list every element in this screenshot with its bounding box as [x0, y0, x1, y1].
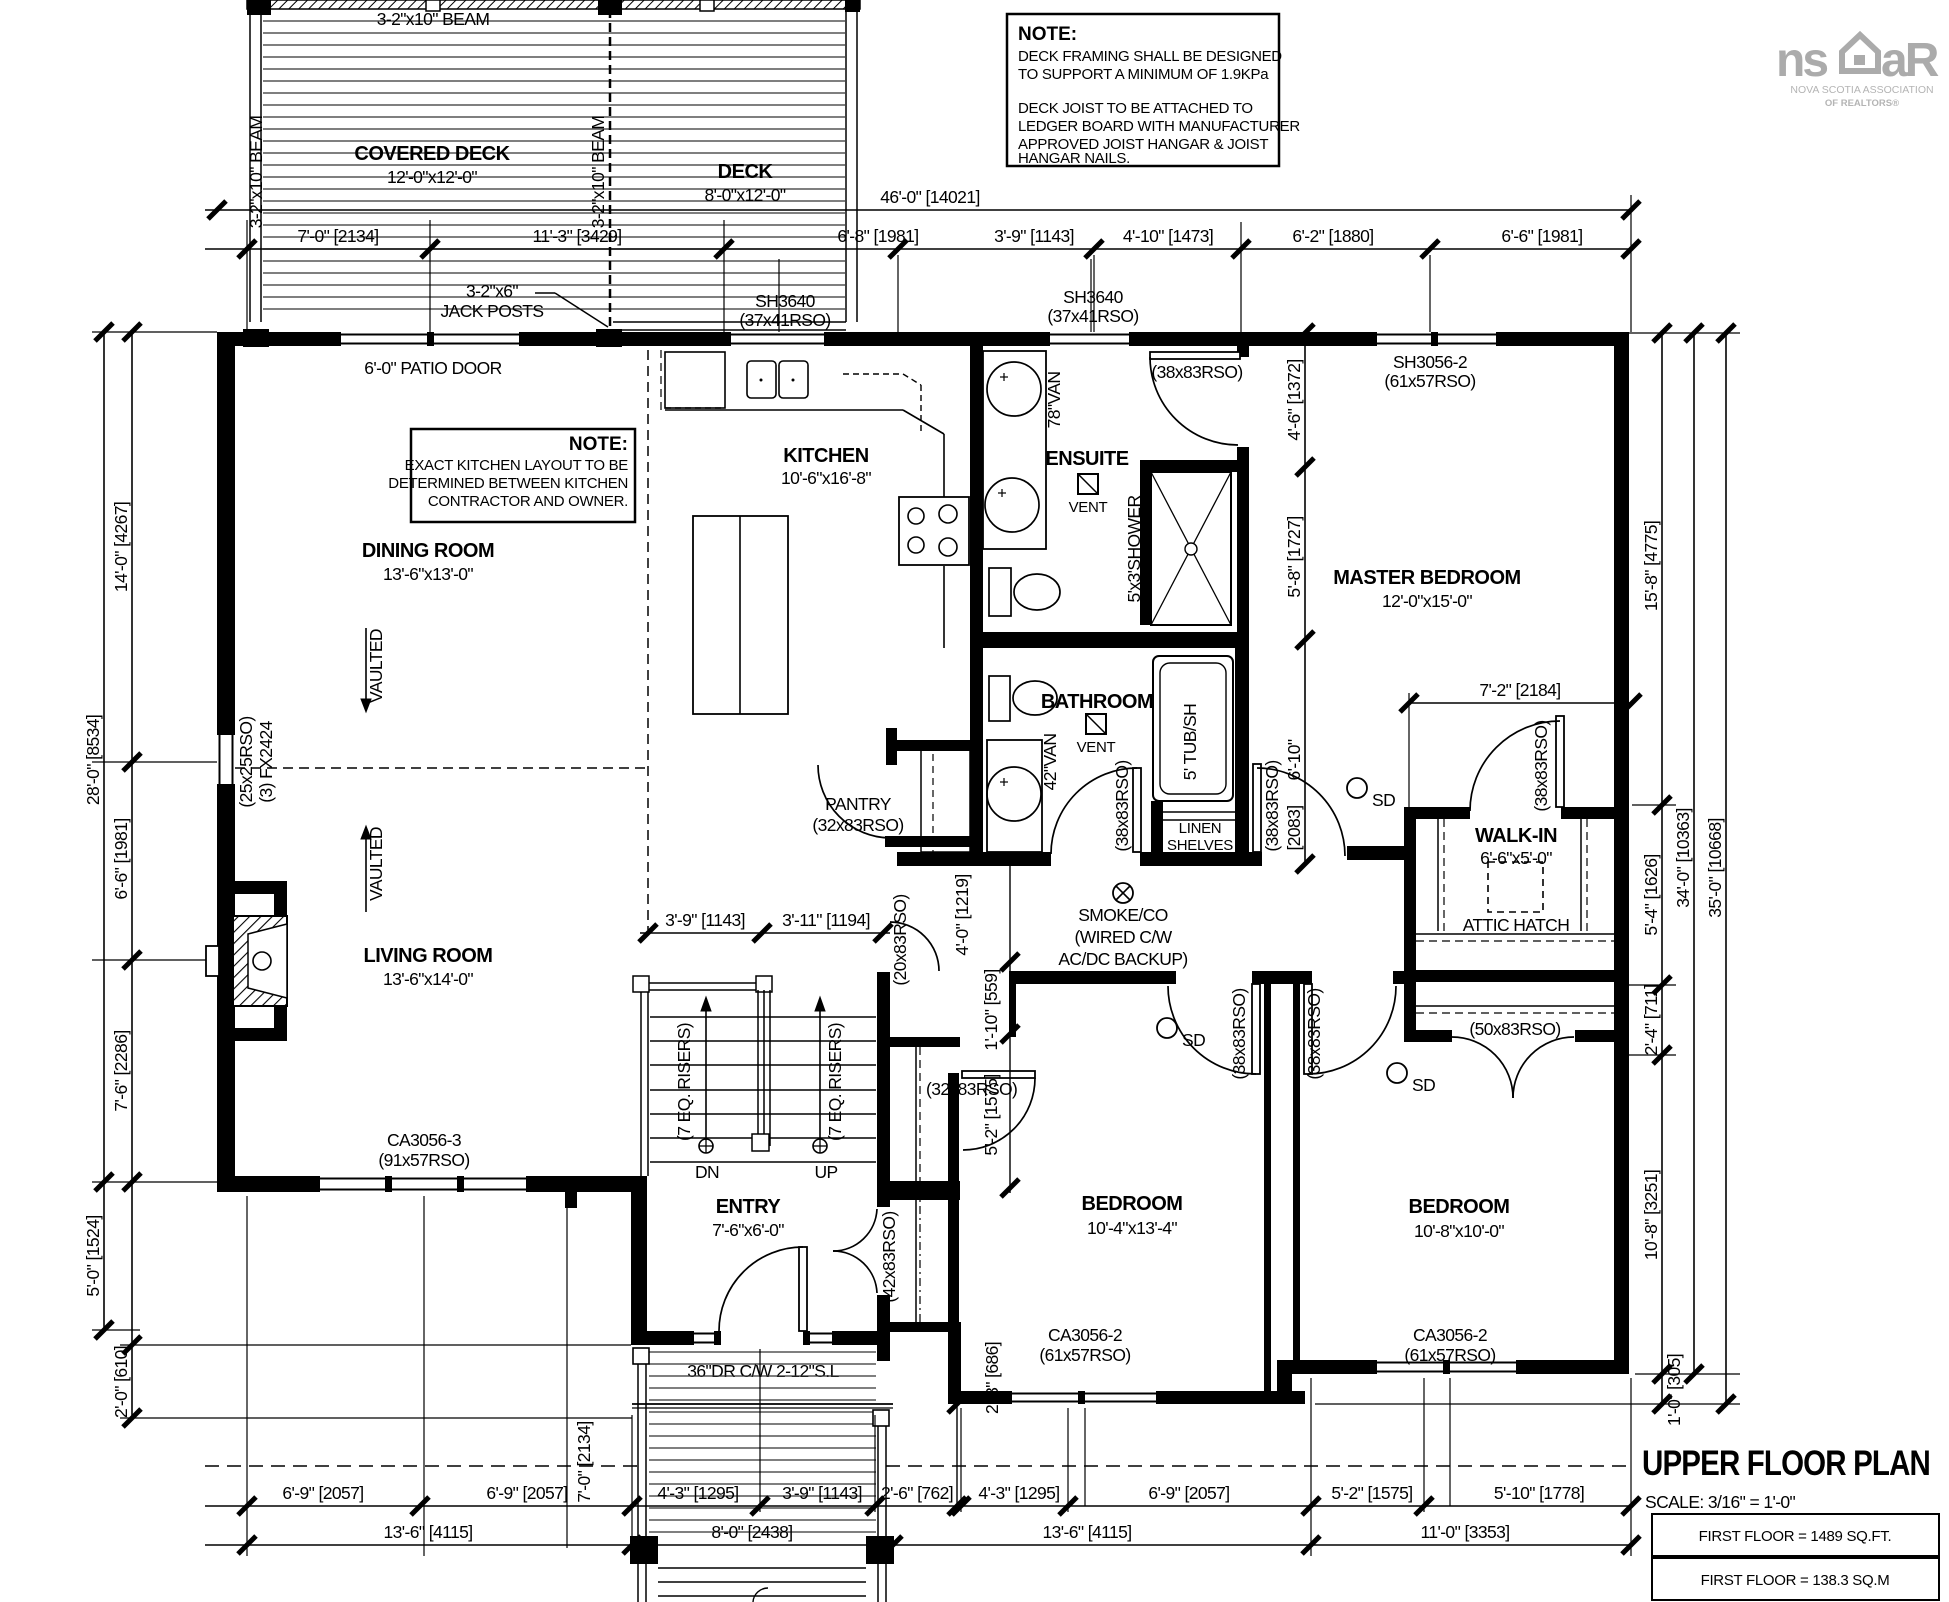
- svg-text:3'-9" [1143]: 3'-9" [1143]: [994, 226, 1074, 246]
- svg-text:CONTRACTOR AND OWNER.: CONTRACTOR AND OWNER.: [428, 493, 628, 510]
- svg-text:6'-8" [1981]: 6'-8" [1981]: [837, 226, 918, 246]
- svg-text:1'-10" [559]: 1'-10" [559]: [981, 969, 1001, 1050]
- svg-text:(38x83RSO): (38x83RSO): [1531, 720, 1551, 811]
- svg-text:VAULTED: VAULTED: [366, 629, 386, 703]
- svg-text:PANTRY: PANTRY: [825, 794, 892, 814]
- svg-text:(25x25RSO): (25x25RSO): [236, 716, 256, 807]
- svg-text:aR: aR: [1881, 34, 1939, 87]
- svg-text:SD: SD: [1412, 1075, 1435, 1095]
- svg-text:11'-3" [3429]: 11'-3" [3429]: [533, 226, 622, 246]
- svg-text:10'-8"x10'-0": 10'-8"x10'-0": [1414, 1221, 1504, 1241]
- svg-text:(38x83RSO): (38x83RSO): [1229, 988, 1249, 1079]
- svg-text:(38x83RSO): (38x83RSO): [1304, 988, 1324, 1079]
- svg-text:3-2"x10" BEAM: 3-2"x10" BEAM: [588, 116, 608, 229]
- svg-text:12'-0"x12'-0": 12'-0"x12'-0": [387, 167, 477, 187]
- svg-text:(61x57RSO): (61x57RSO): [1404, 1345, 1495, 1365]
- svg-text:13'-6"x14'-0": 13'-6"x14'-0": [383, 969, 473, 989]
- svg-text:CA3056-3: CA3056-3: [387, 1130, 461, 1150]
- svg-text:SCALE: 3/16" = 1'-0": SCALE: 3/16" = 1'-0": [1645, 1492, 1796, 1512]
- svg-text:6'-6" [1981]: 6'-6" [1981]: [1501, 226, 1582, 246]
- svg-text:TO SUPPORT A MINIMUM OF 1.9KPa: TO SUPPORT A MINIMUM OF 1.9KPa: [1018, 66, 1269, 83]
- svg-text:(7 EQ. RISERS): (7 EQ. RISERS): [825, 1023, 845, 1141]
- svg-text:FIRST FLOOR = 138.3 SQ.M: FIRST FLOOR = 138.3 SQ.M: [1701, 1572, 1890, 1589]
- svg-text:7'-6"x6'-0": 7'-6"x6'-0": [712, 1220, 784, 1240]
- svg-text:(38x83RSO): (38x83RSO): [1262, 760, 1282, 851]
- svg-text:HANGAR NAILS.: HANGAR NAILS.: [1018, 150, 1130, 167]
- svg-text:BATHROOM: BATHROOM: [1041, 691, 1153, 713]
- svg-text:(42x83RSO): (42x83RSO): [879, 1211, 899, 1302]
- svg-text:6'-2" [1880]: 6'-2" [1880]: [1292, 226, 1373, 246]
- svg-text:MASTER BEDROOM: MASTER BEDROOM: [1333, 567, 1520, 589]
- svg-text:7'-0" [2134]: 7'-0" [2134]: [574, 1421, 594, 1502]
- svg-text:7'-0" [2134]: 7'-0" [2134]: [297, 226, 378, 246]
- svg-text:(61x57RSO): (61x57RSO): [1039, 1345, 1130, 1365]
- svg-text:COVERED DECK: COVERED DECK: [354, 143, 510, 165]
- svg-text:3-2"x10" BEAM: 3-2"x10" BEAM: [377, 9, 490, 29]
- svg-text:2'-6" [762]: 2'-6" [762]: [881, 1483, 953, 1503]
- svg-text:6'-9" [2057]: 6'-9" [2057]: [486, 1483, 567, 1503]
- svg-text:5'-8" [1727]: 5'-8" [1727]: [1284, 516, 1304, 597]
- svg-text:DETERMINED BETWEEN KITCHEN: DETERMINED BETWEEN KITCHEN: [388, 475, 628, 492]
- svg-text:15'-8" [4775]: 15'-8" [4775]: [1641, 521, 1661, 611]
- svg-text:SD: SD: [1372, 790, 1395, 810]
- svg-text:LEDGER BOARD WITH MANUFACTURER: LEDGER BOARD WITH MANUFACTURER: [1018, 118, 1300, 135]
- svg-text:BEDROOM: BEDROOM: [1409, 1196, 1510, 1218]
- svg-text:5'-2" [1575]: 5'-2" [1575]: [981, 1074, 1001, 1155]
- svg-text:(91x57RSO): (91x57RSO): [378, 1150, 469, 1170]
- svg-text:11'-0" [3353]: 11'-0" [3353]: [1421, 1522, 1510, 1542]
- svg-text:NOTE:: NOTE:: [569, 434, 628, 455]
- svg-text:EXACT KITCHEN LAYOUT TO BE: EXACT KITCHEN LAYOUT TO BE: [405, 457, 629, 474]
- svg-text:3'-9" [1143]: 3'-9" [1143]: [782, 1483, 862, 1503]
- svg-text:SD: SD: [1182, 1030, 1205, 1050]
- svg-text:42"VAN: 42"VAN: [1040, 734, 1060, 791]
- svg-text:WALK-IN: WALK-IN: [1475, 825, 1557, 847]
- svg-text:ns: ns: [1776, 34, 1827, 87]
- svg-text:7'-2" [2184]: 7'-2" [2184]: [1479, 680, 1560, 700]
- svg-text:KITCHEN: KITCHEN: [783, 445, 868, 467]
- svg-text:ENTRY: ENTRY: [716, 1196, 782, 1218]
- svg-text:(38x83RSO): (38x83RSO): [1112, 760, 1132, 851]
- svg-text:(37x41RSO): (37x41RSO): [1047, 306, 1138, 326]
- svg-text:28'-0" [8534]: 28'-0" [8534]: [83, 715, 103, 805]
- svg-text:6'-9" [2057]: 6'-9" [2057]: [282, 1483, 363, 1503]
- svg-text:SH3056-2: SH3056-2: [1393, 352, 1467, 372]
- svg-text:2'-0" [610]: 2'-0" [610]: [111, 1346, 131, 1418]
- svg-text:SHELVES: SHELVES: [1167, 837, 1233, 854]
- svg-text:(38x83RSO): (38x83RSO): [1151, 362, 1242, 382]
- svg-text:CA3056-2: CA3056-2: [1048, 1325, 1122, 1345]
- svg-text:LINEN: LINEN: [1179, 820, 1222, 837]
- svg-text:(7 EQ. RISERS): (7 EQ. RISERS): [674, 1023, 694, 1141]
- svg-text:DECK FRAMING SHALL BE DESIGNED: DECK FRAMING SHALL BE DESIGNED: [1018, 48, 1282, 65]
- svg-text:5' TUB/SH: 5' TUB/SH: [1180, 704, 1200, 780]
- svg-text:4'-0" [1219]: 4'-0" [1219]: [952, 874, 972, 955]
- svg-text:LIVING ROOM: LIVING ROOM: [364, 945, 493, 967]
- svg-text:1'-0" [305]: 1'-0" [305]: [1664, 1354, 1684, 1426]
- svg-text:35'-0" [10668]: 35'-0" [10668]: [1705, 818, 1725, 917]
- svg-text:8'-0" [2438]: 8'-0" [2438]: [711, 1522, 792, 1542]
- svg-text:(3) FX2424: (3) FX2424: [256, 720, 276, 802]
- svg-text:6'-6" [1981]: 6'-6" [1981]: [111, 818, 131, 899]
- svg-text:(61x57RSO): (61x57RSO): [1384, 371, 1475, 391]
- svg-text:13'-6" [4115]: 13'-6" [4115]: [1043, 1522, 1132, 1542]
- svg-text:FIRST FLOOR = 1489 SQ.FT.: FIRST FLOOR = 1489 SQ.FT.: [1699, 1528, 1892, 1545]
- svg-text:6'-6"x5'-0": 6'-6"x5'-0": [1480, 848, 1552, 868]
- svg-text:(50x83RSO): (50x83RSO): [1469, 1019, 1560, 1039]
- svg-text:10'-8" [3251]: 10'-8" [3251]: [1641, 1170, 1661, 1260]
- svg-text:13'-6" [4115]: 13'-6" [4115]: [384, 1522, 473, 1542]
- svg-text:6'-9" [2057]: 6'-9" [2057]: [1148, 1483, 1229, 1503]
- svg-text:BEDROOM: BEDROOM: [1082, 1193, 1183, 1215]
- svg-text:SH3640: SH3640: [755, 291, 816, 311]
- svg-text:4'-3" [1295]: 4'-3" [1295]: [978, 1483, 1059, 1503]
- svg-text:2'-4" [711]: 2'-4" [711]: [1641, 985, 1661, 1056]
- svg-text:CA3056-2: CA3056-2: [1413, 1325, 1487, 1345]
- svg-text:46'-0" [14021]: 46'-0" [14021]: [880, 187, 979, 207]
- svg-text:DECK JOIST TO BE ATTACHED TO: DECK JOIST TO BE ATTACHED TO: [1018, 100, 1253, 117]
- svg-text:(37x41RSO): (37x41RSO): [739, 310, 830, 330]
- svg-text:3-2"x10" BEAM: 3-2"x10" BEAM: [246, 116, 266, 229]
- svg-text:4'-6" [1372]: 4'-6" [1372]: [1284, 359, 1304, 440]
- svg-text:6'-10": 6'-10": [1284, 739, 1304, 780]
- svg-text:UP: UP: [814, 1162, 837, 1182]
- svg-text:NOVA SCOTIA ASSOCIATION: NOVA SCOTIA ASSOCIATION: [1790, 84, 1933, 96]
- svg-text:7'-6" [2286]: 7'-6" [2286]: [111, 1030, 131, 1111]
- svg-text:ENSUITE: ENSUITE: [1045, 448, 1128, 470]
- svg-text:[2083]: [2083]: [1284, 805, 1304, 850]
- svg-text:VENT: VENT: [1077, 739, 1116, 756]
- svg-text:DINING ROOM: DINING ROOM: [362, 540, 494, 562]
- svg-text:12'-0"x15'-0": 12'-0"x15'-0": [1382, 591, 1472, 611]
- svg-text:78"VAN: 78"VAN: [1044, 372, 1064, 429]
- svg-text:JACK POSTS: JACK POSTS: [441, 301, 544, 321]
- svg-text:(WIRED C/W: (WIRED C/W: [1074, 927, 1172, 947]
- svg-text:5'-2" [1575]: 5'-2" [1575]: [1331, 1483, 1412, 1503]
- svg-text:NOTE:: NOTE:: [1018, 24, 1077, 45]
- svg-text:5'-0" [1524]: 5'-0" [1524]: [83, 1215, 103, 1296]
- svg-text:(32x83RSO): (32x83RSO): [812, 815, 903, 835]
- svg-text:ATTIC HATCH: ATTIC HATCH: [1463, 915, 1570, 935]
- svg-text:5'-10" [1778]: 5'-10" [1778]: [1494, 1483, 1584, 1503]
- svg-text:4'-3" [1295]: 4'-3" [1295]: [657, 1483, 738, 1503]
- svg-text:2'-3" [686]: 2'-3" [686]: [982, 1342, 1002, 1414]
- svg-text:34'-0" [10363]: 34'-0" [10363]: [1673, 808, 1693, 907]
- svg-text:14'-0" [4267]: 14'-0" [4267]: [111, 502, 131, 592]
- svg-text:3-2"x6": 3-2"x6": [466, 281, 518, 301]
- svg-text:13'-6"x13'-0": 13'-6"x13'-0": [383, 564, 473, 584]
- svg-text:OF REALTORS®: OF REALTORS®: [1825, 98, 1899, 109]
- svg-text:5'-4" [1626]: 5'-4" [1626]: [1641, 854, 1661, 935]
- svg-text:3'-11" [1194]: 3'-11" [1194]: [782, 910, 870, 930]
- svg-text:UPPER FLOOR PLAN: UPPER FLOOR PLAN: [1642, 1444, 1930, 1483]
- svg-text:DN: DN: [695, 1162, 719, 1182]
- svg-text:6'-0" PATIO DOOR: 6'-0" PATIO DOOR: [364, 358, 501, 378]
- svg-text:10'-6"x16'-8": 10'-6"x16'-8": [781, 468, 871, 488]
- svg-text:8'-0"x12'-0": 8'-0"x12'-0": [705, 185, 786, 205]
- svg-text:(32x83RSO): (32x83RSO): [926, 1079, 1017, 1099]
- svg-text:AC/DC BACKUP): AC/DC BACKUP): [1058, 949, 1187, 969]
- svg-text:VENT: VENT: [1069, 499, 1108, 516]
- svg-text:SMOKE/CO: SMOKE/CO: [1078, 905, 1168, 925]
- svg-text:(20x83RSO): (20x83RSO): [890, 894, 910, 985]
- svg-text:5'x3'SHOWER: 5'x3'SHOWER: [1124, 495, 1144, 602]
- svg-text:10'-4"x13'-4": 10'-4"x13'-4": [1087, 1218, 1177, 1238]
- svg-text:4'-10" [1473]: 4'-10" [1473]: [1123, 226, 1213, 246]
- svg-text:3'-9" [1143]: 3'-9" [1143]: [665, 910, 745, 930]
- svg-text:DECK: DECK: [718, 161, 774, 183]
